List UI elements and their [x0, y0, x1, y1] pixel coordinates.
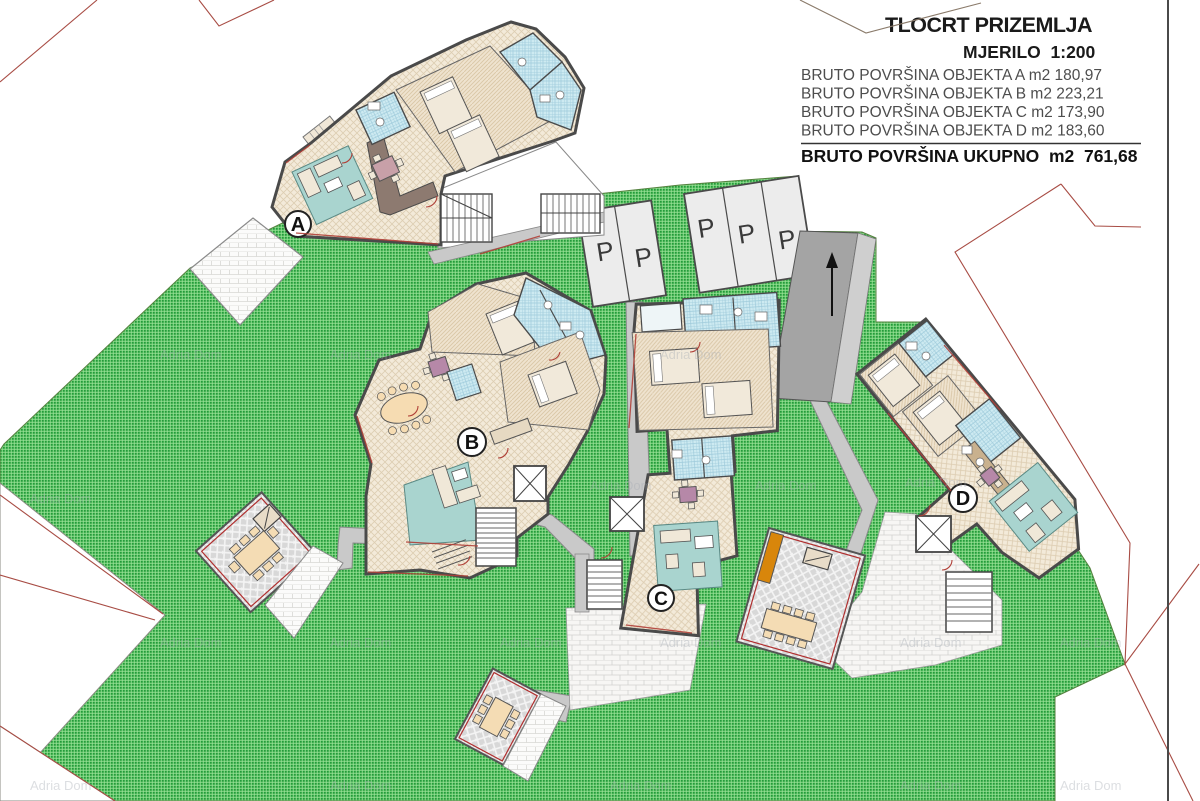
svg-text:Adria Dom: Adria Dom — [755, 478, 816, 493]
svg-text:Adria Dom: Adria Dom — [900, 635, 961, 650]
svg-text:Adria Dom: Adria Dom — [660, 347, 721, 362]
svg-text:Adria Dom: Adria Dom — [30, 491, 91, 506]
svg-text:Adria Dom: Adria Dom — [660, 635, 721, 650]
svg-text:Adria Dom: Adria Dom — [1060, 635, 1121, 650]
svg-text:Adria Dom: Adria Dom — [330, 778, 391, 793]
svg-text:Adria Dom: Adria Dom — [1060, 778, 1121, 793]
svg-text:Adria Dom: Adria Dom — [900, 778, 961, 793]
svg-text:D: D — [956, 488, 970, 510]
svg-text:Adria Dom: Adria Dom — [905, 475, 966, 490]
svg-text:BRUTO POVRŠINA OBJEKTA B m2: BRUTO POVRŠINA OBJEKTA B m2 223,21 — [801, 86, 1104, 103]
svg-text:BRUTO POVRŠINA OBJEKTA D m2: BRUTO POVRŠINA OBJEKTA D m2 183,60 — [801, 123, 1105, 140]
svg-text:Adria Dom: Adria Dom — [610, 778, 671, 793]
svg-text:Adria Dom: Adria Dom — [30, 778, 91, 793]
svg-text:BRUTO POVRŠINA OBJEKTA C m2: BRUTO POVRŠINA OBJEKTA C m2 173,90 — [801, 104, 1105, 121]
svg-text:Adria Dom: Adria Dom — [330, 347, 391, 362]
svg-text:Adria Dom: Adria Dom — [330, 635, 391, 650]
svg-text:Adria Dom: Adria Dom — [500, 635, 561, 650]
svg-text:BRUTO POVRŠINA UKUPNO m2 761: BRUTO POVRŠINA UKUPNO m2 761,68 — [801, 145, 1138, 166]
svg-text:Adria Dom: Adria Dom — [590, 478, 651, 493]
svg-text:B: B — [465, 432, 479, 454]
svg-text:MJERILO 1:200: MJERILO 1:200 — [963, 42, 1096, 62]
svg-text:Adria Dom: Adria Dom — [160, 347, 221, 362]
svg-text:TLOCRT PRIZEMLJA: TLOCRT PRIZEMLJA — [885, 13, 1092, 37]
svg-text:BRUTO POVRŠINA OBJEKTA A m2: BRUTO POVRŠINA OBJEKTA A m2 180,97 — [801, 67, 1102, 84]
svg-text:C: C — [654, 589, 668, 610]
svg-text:Adria Dom: Adria Dom — [160, 635, 221, 650]
